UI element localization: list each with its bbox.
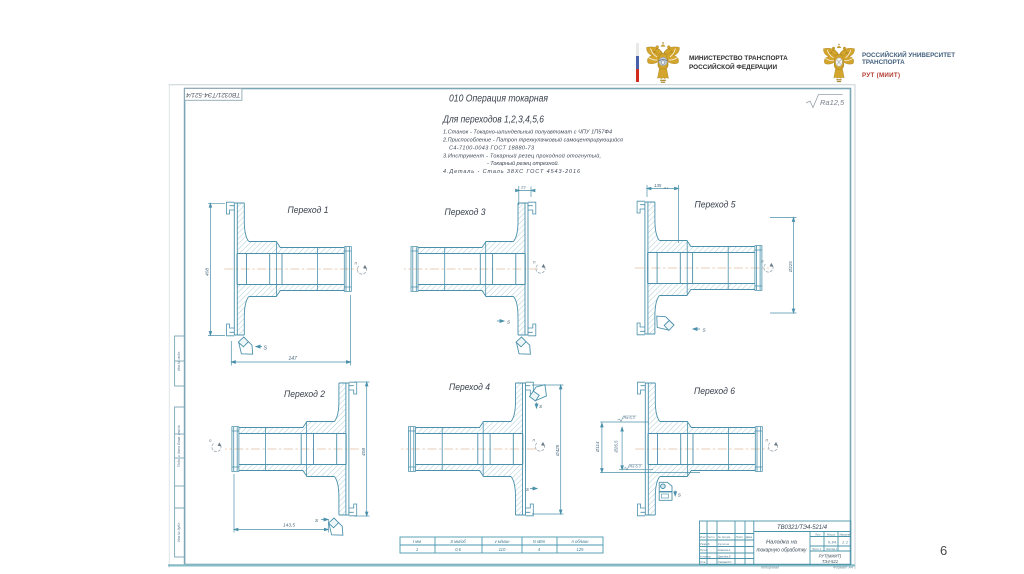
svg-text:Новиков А.: Новиков А. bbox=[718, 548, 731, 552]
svg-text:2.Приспособление - Патрон трех: 2.Приспособление - Патрон трехкулачковый… bbox=[442, 137, 623, 144]
svg-text:ТВ0321/ТЭ4-521/4: ТВ0321/ТЭ4-521/4 bbox=[777, 524, 828, 531]
svg-text:Инв.№ подл.: Инв.№ подл. bbox=[177, 351, 181, 371]
svg-text:0,6: 0,6 bbox=[455, 547, 461, 552]
svg-text:4.Деталь - Сталь 38ХС ГОСТ 454: 4.Деталь - Сталь 38ХС ГОСТ 4543-2016 bbox=[443, 169, 581, 175]
svg-text:S: S bbox=[526, 487, 529, 492]
svg-text:147: 147 bbox=[289, 356, 298, 362]
svg-text:v м/мин: v м/мин bbox=[495, 539, 510, 544]
svg-text:Листов 1: Листов 1 bbox=[825, 547, 838, 551]
svg-text:С4-7100-0043 ГОСТ 18880-73: С4-7100-0043 ГОСТ 18880-73 bbox=[449, 146, 535, 152]
svg-text:Инв.№ дубл.: Инв.№ дубл. bbox=[177, 522, 181, 542]
svg-text:n об/мин: n об/мин bbox=[572, 539, 590, 544]
svg-text:Подп.: Подп. bbox=[736, 535, 744, 539]
svg-text:Масса: Масса bbox=[827, 532, 836, 536]
svg-text:Масштаб: Масштаб bbox=[840, 532, 851, 536]
svg-text:Давыдов В.: Давыдов В. bbox=[717, 555, 731, 559]
svg-text:Ra 6,3: Ra 6,3 bbox=[624, 416, 636, 420]
svg-text:Формат A4: Формат A4 bbox=[833, 566, 853, 570]
svg-text:Переход 3: Переход 3 bbox=[445, 207, 487, 218]
svg-text:t мм: t мм bbox=[413, 539, 421, 544]
svg-text:Ra 6,3: Ra 6,3 bbox=[630, 465, 642, 469]
svg-text:S: S bbox=[264, 346, 268, 352]
svg-text:143,5: 143,5 bbox=[283, 523, 295, 529]
svg-text:-0,2: -0,2 bbox=[663, 186, 669, 190]
svg-text:Переход 6: Переход 6 bbox=[694, 386, 736, 397]
svg-text:1:1: 1:1 bbox=[842, 541, 848, 545]
svg-text:Ø425: Ø425 bbox=[555, 444, 560, 457]
svg-text:408: 408 bbox=[361, 448, 367, 456]
svg-text:Наладка на: Наладка на bbox=[766, 540, 797, 546]
svg-text:Ø114: Ø114 bbox=[595, 441, 600, 453]
svg-text:Переход 5: Переход 5 bbox=[695, 200, 737, 211]
svg-text:3.Инструмент - Токарный резец: 3.Инструмент - Токарный резец проходной … bbox=[443, 153, 601, 160]
svg-text:Дата: Дата bbox=[745, 535, 753, 539]
svg-text:110: 110 bbox=[499, 547, 506, 552]
svg-text:ТВ0321/ТЭ4-521/4: ТВ0321/ТЭ4-521/4 bbox=[186, 91, 241, 98]
svg-text:0,84: 0,84 bbox=[828, 541, 836, 545]
svg-text:Куликов: Куликов bbox=[718, 542, 730, 546]
svg-text:Лист 1: Лист 1 bbox=[811, 547, 822, 551]
svg-text:Ra12,5: Ra12,5 bbox=[820, 98, 845, 107]
svg-text:S: S bbox=[539, 404, 543, 409]
svg-text:4: 4 bbox=[538, 547, 541, 552]
svg-text:010 Операция токарная: 010 Операция токарная bbox=[449, 94, 549, 105]
svg-text:1: 1 bbox=[416, 547, 418, 552]
svg-text:Лит.: Лит. bbox=[814, 532, 821, 536]
svg-text:N кВт: N кВт bbox=[533, 539, 546, 544]
svg-text:Изм Лист: Изм Лист bbox=[700, 535, 715, 539]
svg-text:S: S bbox=[507, 320, 511, 325]
svg-text:125: 125 bbox=[577, 547, 585, 552]
svg-text:Н.контр.: Н.контр. bbox=[700, 555, 711, 559]
svg-text:Ø26,5: Ø26,5 bbox=[614, 440, 619, 454]
svg-text:- Токарный резец отрезной.: - Токарный резец отрезной. bbox=[487, 160, 559, 167]
svg-text:135: 135 bbox=[654, 183, 662, 188]
svg-text:Подп. и дата Взам. инв.№: Подп. и дата Взам. инв.№ bbox=[177, 425, 181, 468]
svg-text:Сачкова О.С.: Сачкова О.С. bbox=[718, 560, 732, 564]
svg-text:S: S bbox=[315, 518, 319, 523]
svg-text:S мм/об: S мм/об bbox=[450, 539, 466, 544]
svg-text:Ø225: Ø225 bbox=[788, 261, 793, 273]
svg-text:Пров.: Пров. bbox=[700, 548, 708, 552]
svg-text:408: 408 bbox=[205, 268, 211, 276]
svg-text:Утв.: Утв. bbox=[700, 560, 706, 564]
svg-text:Разраб.: Разраб. bbox=[700, 542, 710, 546]
svg-text:S: S bbox=[703, 328, 707, 333]
svg-text:№ докум.: № докум. bbox=[718, 535, 731, 539]
svg-text:ТЭ4-521: ТЭ4-521 bbox=[822, 559, 838, 564]
svg-text:Переход 2: Переход 2 bbox=[284, 389, 326, 400]
svg-text:РУТ(МИИТ): РУТ(МИИТ) bbox=[819, 554, 842, 559]
svg-text:23: 23 bbox=[520, 185, 526, 190]
svg-text:S: S bbox=[678, 493, 682, 498]
svg-text:Переход 4: Переход 4 bbox=[449, 382, 490, 393]
svg-text:Копировал: Копировал bbox=[761, 566, 779, 570]
svg-text:токарную обработку: токарную обработку bbox=[757, 548, 807, 554]
svg-text:Переход 1: Переход 1 bbox=[288, 205, 329, 216]
svg-text:1.Станок - Токарно-шпиндельный: 1.Станок - Токарно-шпиндельный полуавтом… bbox=[443, 129, 612, 136]
svg-text:Для переходов 1,2,3,4,5,6: Для переходов 1,2,3,4,5,6 bbox=[442, 115, 544, 126]
